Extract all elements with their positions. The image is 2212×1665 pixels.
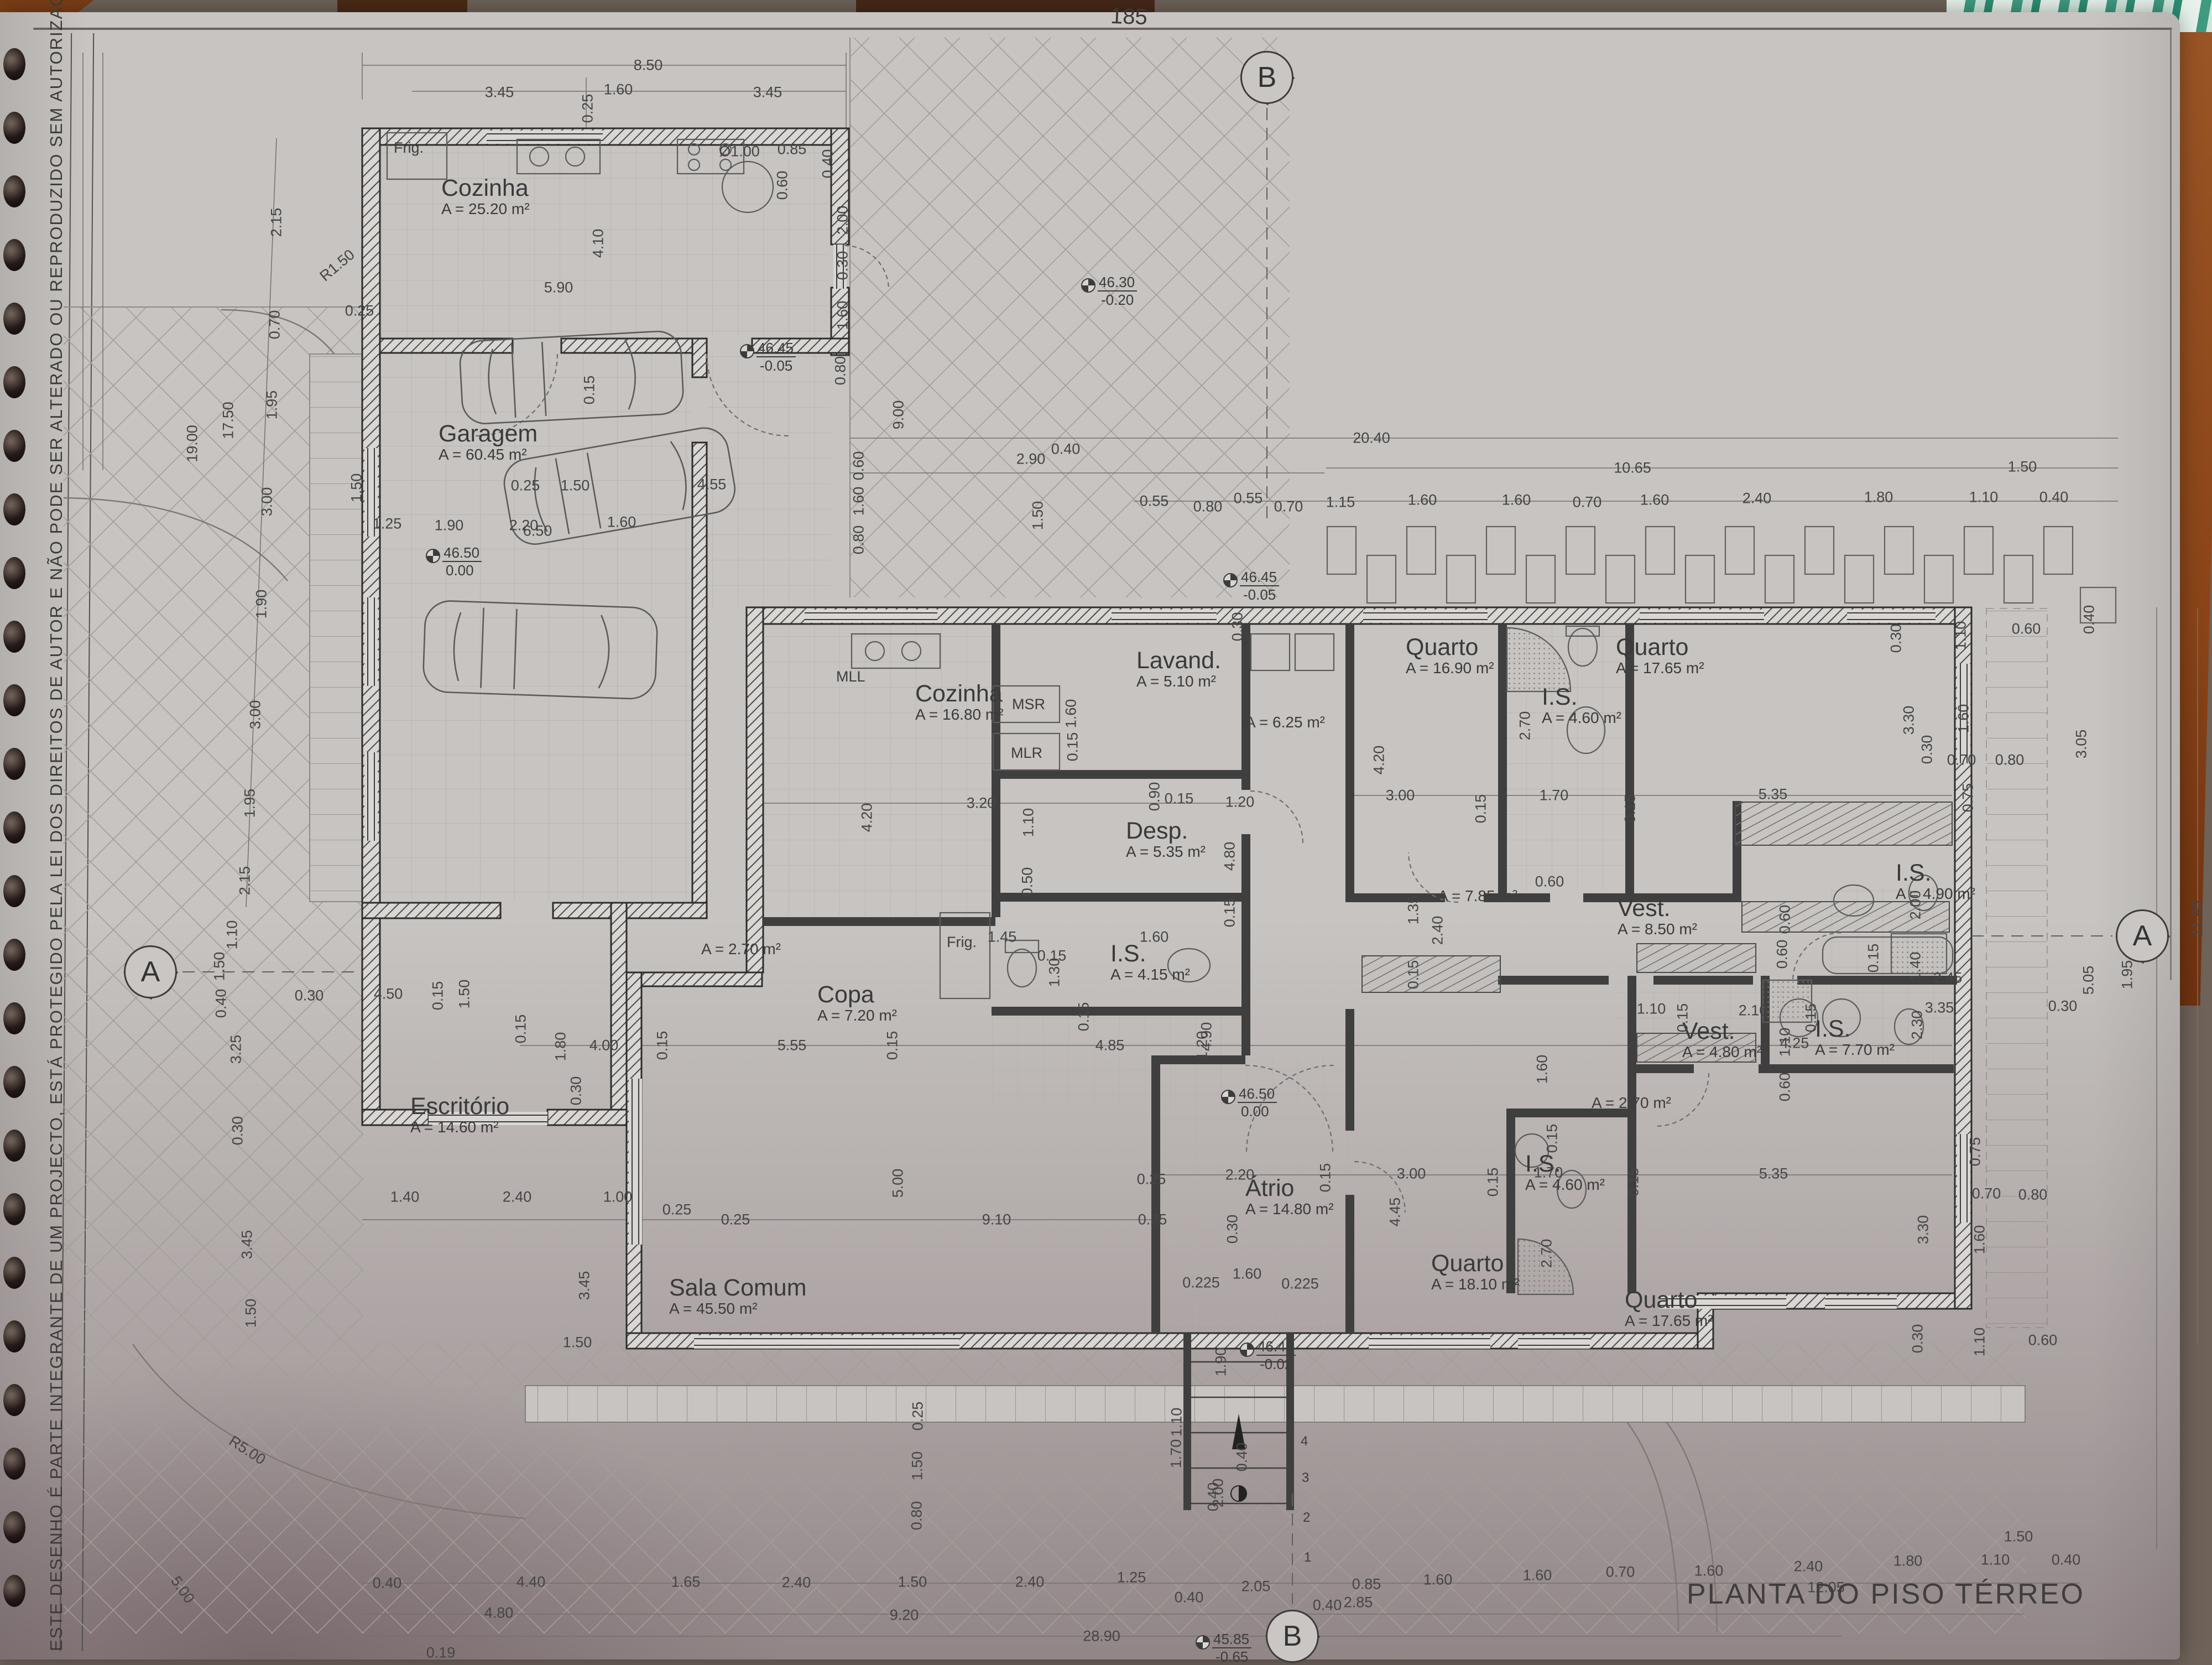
dimension-label: 3.45 bbox=[485, 84, 514, 101]
dimension-label: 1.90 bbox=[1213, 1347, 1230, 1377]
dimension-label: 2.40 bbox=[1430, 916, 1447, 945]
dimension-label: 0.80 bbox=[1193, 498, 1223, 516]
dimension-label: 1.60 bbox=[1694, 1563, 1724, 1580]
dimension-label: 4.80 bbox=[1222, 842, 1239, 871]
dimension-label: 0.90 bbox=[1146, 782, 1164, 811]
level-marker: 46.45-0.05 bbox=[1240, 570, 1279, 602]
dimension-label: 2.20 bbox=[509, 517, 539, 534]
dimension-label: 1.60 bbox=[834, 301, 852, 330]
dimension-label: 0.40 bbox=[213, 989, 230, 1018]
dimension-label: 3.00 bbox=[1397, 1165, 1426, 1183]
section-marker-b: B bbox=[1266, 1610, 1319, 1663]
dimension-label: 1.60 bbox=[1408, 492, 1437, 509]
dimension-label: 0.25 bbox=[721, 1211, 750, 1229]
dimension-label: 4.40 bbox=[517, 1574, 546, 1591]
room-label: I.S.A = 7.70 m² bbox=[1815, 1017, 1895, 1058]
dimension-label: 1.60 bbox=[1955, 704, 1973, 733]
dimension-label: 0.40 bbox=[1175, 1589, 1204, 1606]
dimension-label: 0.15 bbox=[1076, 1002, 1093, 1032]
dimension-label: 0.60 bbox=[1535, 873, 1564, 891]
stair-step-number: 1 bbox=[1304, 1550, 1311, 1565]
dimension-label: 1.60 bbox=[1502, 492, 1531, 509]
fixture-label: MLL bbox=[836, 668, 865, 685]
dimension-label: 1.50 bbox=[1030, 501, 1047, 530]
room-label: CopaA = 7.20 m² bbox=[817, 982, 897, 1024]
dimension-label: 19.00 bbox=[184, 425, 201, 462]
dimension-label: 2.00 bbox=[834, 206, 852, 235]
dimension-label: 1.50 bbox=[348, 474, 366, 503]
dimension-label: 1.60 bbox=[607, 514, 637, 531]
dimension-label: 4.20 bbox=[1371, 746, 1388, 775]
dimension-label: 0.40 bbox=[820, 149, 837, 179]
stair-step-number: 2 bbox=[1303, 1510, 1310, 1526]
room-label: CozinhaA = 16.80 m² bbox=[915, 681, 1004, 723]
copyright-note: ESTE DESENHO É PARTE INTEGRANTE DE UM PR… bbox=[46, 47, 66, 1651]
dimension-label: 0.50 bbox=[1019, 867, 1036, 897]
section-marker-b: B bbox=[1240, 51, 1293, 104]
dimension-label: 0.15 bbox=[884, 1031, 901, 1060]
side-deck bbox=[1986, 608, 2047, 1328]
dimension-label: 1.80 bbox=[1864, 489, 1893, 506]
dimension-label: 1.60 bbox=[1063, 699, 1080, 729]
dimension-label: 0.40 bbox=[2081, 605, 2098, 634]
dimension-label: 0.85 bbox=[1352, 1576, 1381, 1593]
dimension-label: 9.00 bbox=[890, 400, 907, 430]
stair-step-number: 4 bbox=[1301, 1434, 1308, 1449]
dimension-label: 0.60 bbox=[2028, 1332, 2058, 1349]
dimension-label: 28.90 bbox=[1083, 1628, 1120, 1645]
dimension-label: 2.70 bbox=[1517, 711, 1534, 741]
dimension-label: 0.15 bbox=[430, 981, 447, 1011]
dimension-label: 5.05 bbox=[2080, 966, 2098, 995]
dimension-label: 1.20 bbox=[1225, 794, 1255, 811]
dimension-label: 4.90 bbox=[1198, 1022, 1215, 1052]
dimension-label: 1.60 bbox=[1233, 1266, 1262, 1283]
photographed-floor-plan-page: CozinhaA = 25.20 m²GaragemA = 60.45 m²Co… bbox=[0, 0, 2212, 1659]
dimension-label: 1.90 bbox=[435, 517, 464, 534]
dimension-label: 1.30 bbox=[1046, 958, 1063, 987]
dimension-label: 0.15 bbox=[1317, 1163, 1334, 1193]
dimension-label: 0.19 bbox=[426, 1645, 456, 1662]
dimension-label: 0.15 bbox=[1065, 732, 1082, 762]
dimension-label: 1.50 bbox=[243, 1299, 260, 1328]
dimension-label: 0.15 bbox=[581, 376, 598, 405]
dimension-label: 0.25 bbox=[662, 1201, 692, 1219]
area-label: A = 7.85 m² bbox=[1438, 887, 1517, 905]
dimension-label: 1.95 bbox=[242, 789, 259, 818]
drawing-title: PLANTA DO PISO TÉRREO bbox=[1687, 1578, 2085, 1611]
dimension-label: 0.60 bbox=[1774, 940, 1791, 969]
dimension-label: 0.15 bbox=[1165, 790, 1194, 808]
dimension-label: 0.55 bbox=[1140, 493, 1169, 510]
dimension-label: 1.45 bbox=[988, 929, 1017, 946]
section-marker-a: A bbox=[2116, 909, 2169, 962]
dimension-label: 0.60 bbox=[1777, 905, 1794, 934]
dimension-label: 2.00 bbox=[1907, 891, 1924, 920]
dimension-label: 17.50 bbox=[220, 402, 237, 439]
stair-step-number: 3 bbox=[1302, 1470, 1309, 1486]
dimension-label: 1.25 bbox=[373, 516, 402, 533]
dimension-label: 0.75 bbox=[1960, 783, 1977, 813]
dimension-label: 4.00 bbox=[589, 1037, 619, 1054]
level-marker: 46.45-0.05 bbox=[757, 341, 796, 373]
dimension-label: 1.60 bbox=[1423, 1572, 1453, 1589]
dimension-label: 2.70 bbox=[1538, 1239, 1556, 1268]
dimension-label: 0.15 bbox=[1485, 1168, 1502, 1197]
dimension-label: 1.50 bbox=[909, 1451, 926, 1481]
dimension-label: 9.20 bbox=[890, 1607, 919, 1624]
level-marker: 46.500.00 bbox=[1238, 1086, 1277, 1118]
dimension-label: 0.85 bbox=[778, 141, 807, 158]
dimension-label: 0.15 bbox=[1622, 794, 1639, 824]
dimension-label: 1.95 bbox=[2119, 960, 2136, 990]
dimension-label: 0.40 bbox=[1205, 1482, 1222, 1512]
dimension-label: 3.45 bbox=[576, 1271, 593, 1300]
dimension-label: 0.55 bbox=[1234, 490, 1263, 507]
dimension-label: 0.15 bbox=[513, 1014, 530, 1044]
dimension-label: 2.40 bbox=[1743, 490, 1772, 507]
level-marker: 46.48-0.02 bbox=[1256, 1339, 1296, 1371]
room-label: CozinhaA = 25.20 m² bbox=[441, 176, 530, 217]
dimension-label: 0.25 bbox=[1138, 1211, 1167, 1229]
dimension-label: 0.70 bbox=[1274, 498, 1303, 516]
room-label: Sala ComumA = 45.50 m² bbox=[669, 1276, 807, 1317]
dimension-label: 0.80 bbox=[851, 525, 868, 555]
dimension-label: 3.35 bbox=[1925, 1000, 1954, 1017]
dimension-label: 0.30 bbox=[834, 251, 852, 280]
dimension-label: Ø1.00 bbox=[719, 143, 760, 160]
dimension-label: 4.50 bbox=[374, 986, 403, 1003]
dimension-label: 0.60 bbox=[774, 171, 791, 200]
floor-plan-drawing bbox=[0, 0, 2212, 1659]
dimension-label: 3.45 bbox=[753, 84, 782, 101]
dimension-label: 2.15 bbox=[237, 866, 254, 896]
dimension-label: 2.45 bbox=[1933, 970, 1963, 987]
dimension-label: 4.55 bbox=[697, 476, 727, 493]
dimension-label: 1.50 bbox=[456, 980, 473, 1009]
dimension-label: 0.80 bbox=[2018, 1187, 2048, 1204]
room-label: Vest.A = 8.50 m² bbox=[1618, 896, 1697, 938]
dimension-label: 3.00 bbox=[1386, 787, 1415, 804]
dimension-label: 1.50 bbox=[2004, 1528, 2033, 1546]
dimension-label: 1.10 bbox=[1953, 621, 1970, 651]
page-number: 185 bbox=[1110, 4, 1147, 30]
dimension-label: 3.20 bbox=[967, 795, 996, 812]
dimension-label: 0.40 bbox=[1051, 441, 1081, 458]
dimension-label: 0.15 bbox=[1544, 1124, 1561, 1153]
dimension-label: 0.15 bbox=[1803, 1003, 1820, 1033]
dimension-label: 0.40 bbox=[2039, 489, 2069, 506]
dimension-label: 0.70 bbox=[267, 310, 284, 340]
room-label: I.S.A = 4.60 m² bbox=[1542, 685, 1621, 726]
dimension-label: 3.00 bbox=[247, 700, 264, 730]
dimension-label: 5.35 bbox=[1759, 1165, 1788, 1183]
dimension-label: 5.35 bbox=[1759, 786, 1788, 803]
dimension-label: 1.10 bbox=[1020, 808, 1037, 837]
dimension-label: 1.70 bbox=[1534, 1164, 1563, 1182]
dimension-label: 1.40 bbox=[1907, 952, 1924, 981]
dimension-label: 0.25 bbox=[910, 1402, 927, 1431]
dimension-label: 0.70 bbox=[1573, 494, 1602, 511]
dimension-label: 4.10 bbox=[590, 229, 607, 258]
dimension-label: 2.85 bbox=[1344, 1594, 1373, 1611]
dimension-label: 10.65 bbox=[1614, 460, 1651, 477]
dimension-label: 1.10 bbox=[1168, 1408, 1186, 1437]
room-label: I.S.A = 4.15 m² bbox=[1110, 941, 1190, 983]
dimension-label: 0.15 bbox=[1625, 1168, 1642, 1197]
dimension-label: 1.80 bbox=[552, 1032, 570, 1062]
dimension-label: 0.15 bbox=[1674, 1003, 1692, 1033]
dimension-label: 3.45 bbox=[239, 1230, 256, 1260]
section-marker-a: A bbox=[124, 945, 177, 998]
dimension-label: 1.35 bbox=[1405, 896, 1422, 925]
dimension-label: 8.50 bbox=[634, 57, 663, 74]
room-label: QuartoA = 17.65 m² bbox=[1625, 1288, 1713, 1329]
dimension-label: 1.60 bbox=[1523, 1567, 1552, 1584]
dimension-label: 0.40 bbox=[1234, 1443, 1251, 1472]
dimension-label: 1.60 bbox=[1971, 1225, 1989, 1255]
room-label: EscritórioA = 14.60 m² bbox=[410, 1094, 509, 1136]
dimension-label: 20.40 bbox=[1353, 430, 1390, 447]
dimension-label: 1.60 bbox=[851, 487, 868, 516]
room-label: GaragemA = 60.45 m² bbox=[439, 422, 538, 463]
dimension-label: 0.15 bbox=[1865, 944, 1882, 973]
level-marker: 45.85-0.65 bbox=[1212, 1632, 1251, 1664]
dimension-label: 4.20 bbox=[859, 803, 876, 832]
room-label: Lavand.A = 5.10 m² bbox=[1136, 648, 1221, 690]
dimension-label: 4.80 bbox=[484, 1605, 514, 1622]
dimension-label: 0.30 bbox=[1224, 1215, 1241, 1244]
level-marker: 46.500.00 bbox=[442, 545, 482, 577]
dimension-label: 4.85 bbox=[1095, 1037, 1125, 1054]
dimension-label: 1.10 bbox=[224, 920, 241, 950]
dimension-label: 0.30 bbox=[1910, 1324, 1927, 1354]
dimension-label: 0.40 bbox=[2052, 1552, 2081, 1569]
dimension-label: 0.70 bbox=[1947, 752, 1976, 769]
room-label: Desp.A = 5.35 m² bbox=[1126, 819, 1206, 860]
dimension-label: 0.225 bbox=[1182, 1274, 1220, 1292]
dimension-label: 1.10 bbox=[1981, 1552, 2010, 1569]
dimension-label: 1.10 bbox=[1637, 1001, 1666, 1018]
dimension-label: 0.30 bbox=[1919, 735, 1936, 764]
dimension-label: 2.10 bbox=[1739, 1002, 1768, 1019]
level-marker: 46.30-0.20 bbox=[1098, 275, 1137, 307]
dimension-label: 3.30 bbox=[1915, 1215, 1932, 1245]
dimension-label: 1.80 bbox=[1893, 1553, 1923, 1570]
dimension-label: 2.40 bbox=[1794, 1558, 1823, 1575]
dimension-label: 1.15 bbox=[1326, 494, 1355, 511]
dimension-label: 0.15 bbox=[1222, 898, 1239, 928]
room-label: QuartoA = 16.90 m² bbox=[1406, 635, 1494, 677]
dimension-label: 2.05 bbox=[1241, 1578, 1271, 1595]
dimension-label: 11.95 bbox=[2189, 900, 2206, 936]
area-label: A = 2.70 m² bbox=[1592, 1094, 1671, 1112]
dimension-label: 2.40 bbox=[503, 1189, 532, 1206]
dimension-label: 0.80 bbox=[1995, 752, 2025, 769]
dimension-label: 0.80 bbox=[909, 1501, 926, 1531]
dimension-label: 1.50 bbox=[898, 1574, 927, 1591]
dimension-label: 9.10 bbox=[982, 1211, 1011, 1229]
dimension-label: 0.30 bbox=[2048, 998, 2078, 1015]
dimension-label: 1.50 bbox=[211, 952, 228, 981]
room-label: QuartoA = 17.65 m² bbox=[1616, 635, 1704, 677]
dimension-label: 0.15 bbox=[1473, 794, 1490, 824]
dimension-label: 1.10 bbox=[1777, 1028, 1794, 1057]
dimension-label: 3.30 bbox=[1901, 706, 1918, 735]
dimension-label: 0.75 bbox=[1967, 1137, 1984, 1167]
dimension-label: 0.40 bbox=[373, 1575, 402, 1592]
dimension-label: 1.60 bbox=[1640, 492, 1670, 509]
dimension-label: 2.20 bbox=[1225, 1167, 1255, 1184]
dimension-label: 1.00 bbox=[603, 1189, 633, 1206]
dimension-label: 1.10 bbox=[1969, 489, 1999, 506]
dimension-label: 3.25 bbox=[228, 1035, 245, 1064]
dimension-label: 0.225 bbox=[1281, 1276, 1319, 1293]
dimension-label: 0.15 bbox=[654, 1031, 671, 1060]
fixture-label: Frig. bbox=[947, 934, 977, 951]
dimension-label: 0.30 bbox=[568, 1076, 585, 1106]
room-label: Vest.A = 4.80 m² bbox=[1682, 1019, 1762, 1060]
dimension-label: 1.50 bbox=[561, 477, 590, 495]
dimension-label: 0.30 bbox=[1229, 612, 1246, 642]
dimension-label: 0.25 bbox=[1137, 1171, 1166, 1188]
dimension-label: 2.15 bbox=[268, 208, 285, 237]
fixture-label: MSR bbox=[1012, 696, 1045, 713]
dimension-label: 0.25 bbox=[345, 303, 374, 320]
dimension-label: 5.55 bbox=[778, 1037, 807, 1054]
dimension-label: 0.80 bbox=[832, 356, 849, 386]
dimension-label: 0.60 bbox=[851, 451, 868, 481]
dimension-label: 1.90 bbox=[253, 590, 270, 619]
dimension-label: 3.00 bbox=[259, 487, 276, 517]
dimension-label: 1.40 bbox=[390, 1189, 420, 1206]
area-label: A = 2.70 m² bbox=[701, 940, 781, 958]
dimension-label: 1.60 bbox=[1140, 929, 1169, 946]
dimension-label: 5.00 bbox=[890, 1169, 907, 1198]
dimension-label: 2.40 bbox=[1015, 1574, 1045, 1591]
dimension-label: 4.45 bbox=[1387, 1198, 1404, 1227]
dimension-label: 1.65 bbox=[671, 1574, 701, 1591]
dimension-label: 0.60 bbox=[2012, 621, 2041, 638]
dimension-label: 5.90 bbox=[544, 279, 573, 296]
area-label: A = 6.25 m² bbox=[1245, 714, 1325, 731]
dimension-label: 3.05 bbox=[2073, 730, 2090, 759]
dimension-label: 0.30 bbox=[229, 1116, 247, 1146]
room-label: QuartoA = 18.10 m² bbox=[1431, 1251, 1520, 1293]
dimension-label: 1.95 bbox=[264, 391, 281, 420]
dimension-label: 1.70 bbox=[1168, 1439, 1185, 1469]
dimension-label: 2.30 bbox=[1909, 1011, 1926, 1040]
dimension-label: 2.90 bbox=[1016, 451, 1046, 468]
dimension-label: 1.60 bbox=[604, 81, 633, 98]
dimension-label: 1.25 bbox=[1117, 1569, 1146, 1586]
dimension-label: 2.40 bbox=[782, 1574, 811, 1591]
fixture-label: Frig. bbox=[394, 139, 424, 157]
dimension-label: 1.60 bbox=[1534, 1055, 1551, 1084]
dimension-label: 1.10 bbox=[1971, 1328, 1989, 1357]
dimension-label: 0.30 bbox=[295, 987, 324, 1005]
fixture-label: MLR bbox=[1011, 745, 1042, 762]
dimension-label: 0.70 bbox=[1972, 1185, 2001, 1203]
dimension-label: 0.15 bbox=[1405, 960, 1422, 990]
dimension-label: 1.70 bbox=[1540, 787, 1569, 804]
dimension-label: 1.50 bbox=[563, 1334, 592, 1351]
dimension-label: 0.70 bbox=[1606, 1564, 1635, 1581]
dimension-label: 0.30 bbox=[1888, 624, 1905, 653]
dimension-label: 0.25 bbox=[511, 477, 540, 495]
dimension-label: 1.50 bbox=[2008, 459, 2037, 476]
dimension-label: 0.25 bbox=[580, 94, 597, 123]
dimension-label: 0.60 bbox=[1777, 1073, 1794, 1102]
